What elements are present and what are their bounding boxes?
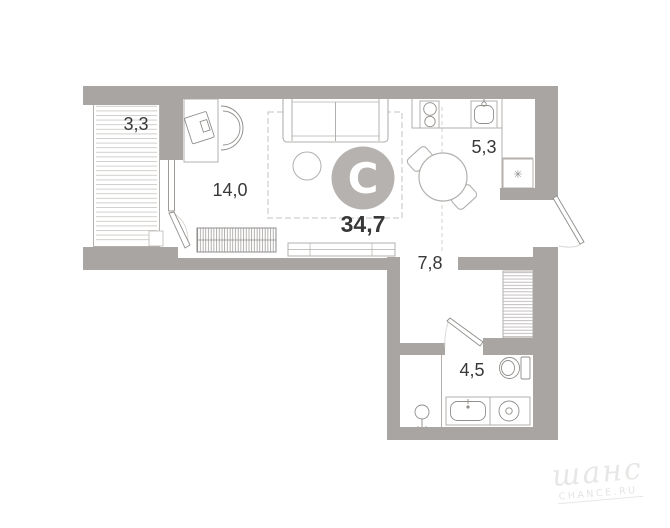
balcony-area-label: 3,3 <box>123 114 148 134</box>
living-room-area-label: 14,0 <box>212 180 247 200</box>
tv-console-icon <box>288 243 395 256</box>
total-area-label: 34,7 <box>341 211 386 237</box>
coffee-table-icon <box>293 152 321 180</box>
radiator-icon <box>197 228 276 252</box>
bathroom-area-label: 4,5 <box>459 360 484 380</box>
kitchen-area-label: 5,3 <box>471 137 496 157</box>
balcony-window <box>169 160 175 211</box>
wall-wardrobe-top <box>458 257 533 270</box>
wall-bath-top-left <box>400 343 445 355</box>
wardrobe-icon <box>503 271 533 338</box>
bathroom-sink-icon <box>446 397 490 425</box>
wall-wardrobe-bottom <box>483 338 533 355</box>
stove-icon <box>420 101 439 128</box>
snowflake-icon: ✳ <box>513 168 522 181</box>
wall-entry-top <box>500 188 558 200</box>
wall-hall-left <box>387 257 400 440</box>
dining-table-icon <box>419 153 467 201</box>
balcony-box <box>149 231 163 246</box>
bathroom-door <box>445 318 483 347</box>
wall-top-left <box>83 86 160 105</box>
fridge-icon: ✳ <box>503 159 533 188</box>
hallway-area-label: 7,8 <box>417 253 442 273</box>
brand-logo: C <box>332 147 395 210</box>
wall-bottom <box>387 427 558 440</box>
wall-bottom-left <box>83 247 178 270</box>
wall-living-bottom <box>175 258 400 270</box>
entrance-door <box>553 196 584 247</box>
brand-logo-letter: C <box>348 154 379 203</box>
balcony-door <box>169 212 190 248</box>
floor-plan: ✳ <box>0 0 670 528</box>
watermark: шанс CHANCE.RU <box>551 451 645 504</box>
kitchen-sink-icon <box>471 96 497 128</box>
toilet-icon <box>500 357 531 379</box>
wall-right-upper <box>535 99 558 198</box>
wall-balcony-divider <box>160 86 183 160</box>
desk-chair-icon <box>221 106 243 150</box>
sofa-icon <box>283 96 388 142</box>
washing-machine-icon <box>490 397 530 425</box>
wall-right-lower <box>533 247 558 427</box>
